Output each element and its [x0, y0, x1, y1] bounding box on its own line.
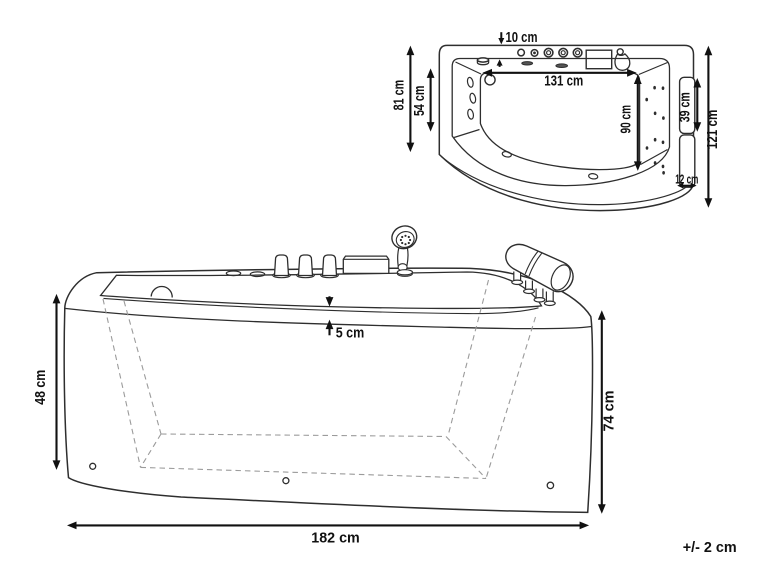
svg-text:10 cm: 10 cm — [506, 29, 538, 46]
svg-text:131 cm: 131 cm — [544, 73, 583, 90]
svg-text:182 cm: 182 cm — [311, 529, 360, 546]
svg-text:48 cm: 48 cm — [32, 370, 49, 405]
svg-text:74 cm: 74 cm — [600, 391, 617, 432]
svg-text:81 cm: 81 cm — [391, 80, 408, 111]
svg-text:5 cm: 5 cm — [336, 324, 365, 341]
svg-text:121 cm: 121 cm — [704, 110, 721, 150]
svg-text:39 cm: 39 cm — [677, 92, 694, 122]
svg-text:90 cm: 90 cm — [617, 105, 634, 134]
svg-text:54 cm: 54 cm — [411, 86, 428, 117]
svg-text:+/- 2 cm: +/- 2 cm — [683, 539, 737, 556]
svg-text:12 cm: 12 cm — [675, 172, 698, 187]
